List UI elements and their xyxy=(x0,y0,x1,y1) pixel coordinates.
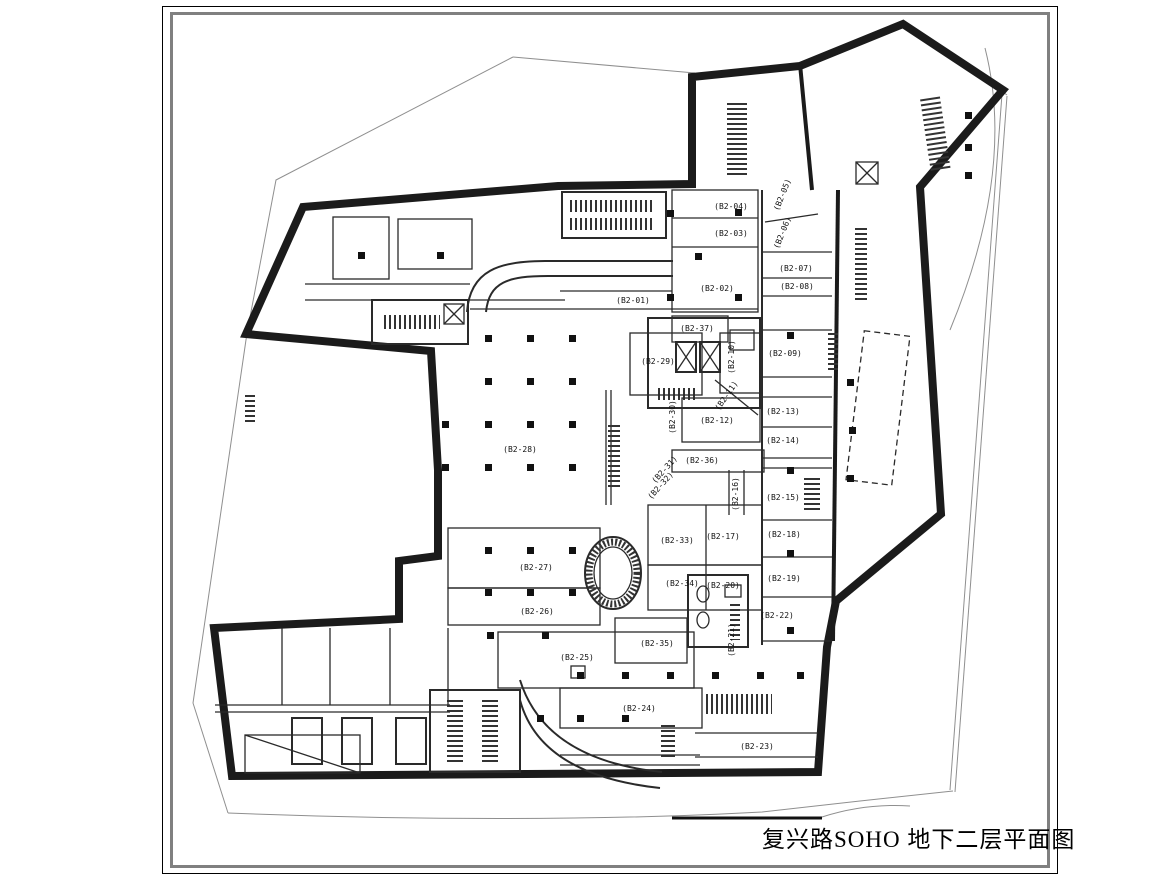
room-label-b2-37: (B2-37) xyxy=(680,324,714,333)
room-label-b2-08: (B2-08) xyxy=(780,282,814,291)
room-label-b2-22: (B2-22) xyxy=(760,611,794,620)
room-label-b2-14: (B2-14) xyxy=(766,436,800,445)
building-outline-wall xyxy=(214,24,1003,776)
room-label-b2-27: (B2-27) xyxy=(519,563,553,572)
room-label-b2-07: (B2-07) xyxy=(779,264,813,273)
title-leader-line xyxy=(672,805,910,818)
room-label-b2-13: (B2-13) xyxy=(766,407,800,416)
property-boundary-lines xyxy=(193,20,1007,819)
room-label-b2-21: (B2-21) xyxy=(727,623,736,657)
room-label-b2-30: (B2-30) xyxy=(668,400,677,434)
drawing-title: 复兴路SOHO 地下二层平面图 xyxy=(762,820,1030,854)
room-label-b2-18: (B2-18) xyxy=(767,530,801,539)
room-label-b2-17: (B2-17) xyxy=(706,532,740,541)
room-label-b2-03: (B2-03) xyxy=(714,229,748,238)
room-label-b2-02: (B2-02) xyxy=(700,284,734,293)
room-label-b2-33: (B2-33) xyxy=(660,536,694,545)
room-label-b2-24: (B2-24) xyxy=(622,704,656,713)
room-label-b2-19: (B2-19) xyxy=(767,574,801,583)
room-label-b2-35: (B2-35) xyxy=(640,639,674,648)
room-label-b2-16: (B2-16) xyxy=(731,477,740,511)
oval-stair xyxy=(585,537,641,609)
room-label-b2-12: (B2-12) xyxy=(700,416,734,425)
rooms-left-wing xyxy=(305,217,565,300)
room-labels: (B2-01) (B2-02) (B2-03) (B2-04) (B2-05) … xyxy=(503,177,814,751)
room-label-b2-04: (B2-04) xyxy=(714,202,748,211)
room-label-b2-29: (B2-29) xyxy=(641,357,675,366)
room-label-b2-26: (B2-26) xyxy=(520,607,554,616)
room-label-b2-36: (B2-36) xyxy=(685,456,719,465)
floor-plan: (B2-01) (B2-02) (B2-03) (B2-04) (B2-05) … xyxy=(0,0,1154,878)
stair-top-middle xyxy=(372,192,666,344)
mechanical-wing xyxy=(215,628,450,773)
room-label-b2-15: (B2-15) xyxy=(766,493,800,502)
room-label-b2-01: (B2-01) xyxy=(616,296,650,305)
room-label-b2-23: (B2-23) xyxy=(740,742,774,751)
room-label-b2-28: (B2-28) xyxy=(503,445,537,454)
parking-void-dashed xyxy=(846,162,910,485)
room-label-b2-25: (B2-25) xyxy=(560,653,594,662)
room-label-b2-10: (B2-10) xyxy=(727,340,736,374)
central-core xyxy=(630,316,762,442)
room-label-b2-20: (B2-20) xyxy=(706,581,740,590)
rooms-southwest xyxy=(448,390,702,728)
room-label-b2-09: (B2-09) xyxy=(768,349,802,358)
drawing-sheet: (B2-01) (B2-02) (B2-03) (B2-04) (B2-05) … xyxy=(0,0,1154,878)
room-label-b2-34: (B2-34) xyxy=(665,579,699,588)
room-label-b2-05: (B2-05) xyxy=(772,177,793,212)
